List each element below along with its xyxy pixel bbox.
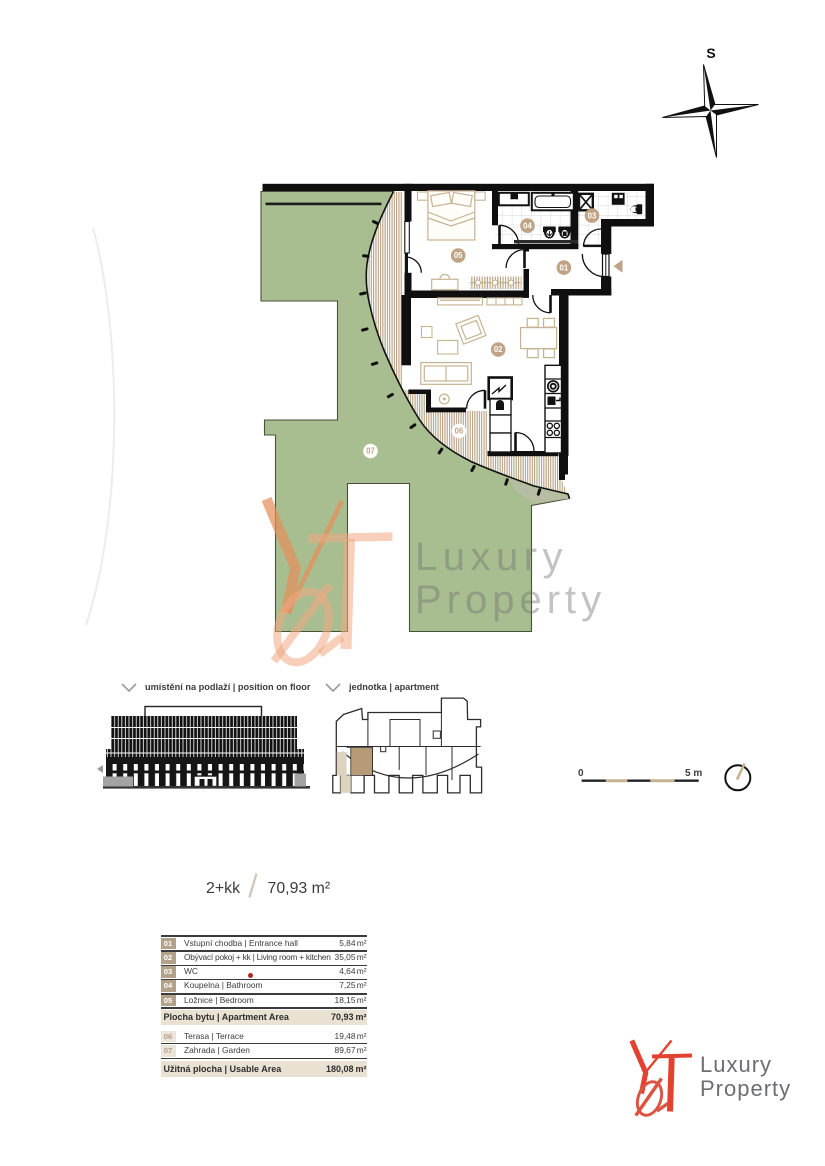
svg-text:0: 0 bbox=[578, 768, 584, 779]
svg-text:03: 03 bbox=[588, 211, 597, 220]
svg-text:S: S bbox=[706, 45, 715, 61]
svg-text:05: 05 bbox=[454, 251, 463, 260]
svg-text:Luxury: Luxury bbox=[415, 535, 568, 579]
svg-text:umístění na podlaží | position: umístění na podlaží | position on floor bbox=[145, 682, 311, 692]
svg-text:04: 04 bbox=[523, 221, 532, 230]
svg-text:2+kk: 2+kk bbox=[206, 880, 240, 897]
svg-text:5 m: 5 m bbox=[685, 768, 702, 779]
svg-text:06: 06 bbox=[455, 427, 464, 436]
svg-text:02: 02 bbox=[494, 345, 503, 354]
svg-text:jednotka | apartment: jednotka | apartment bbox=[348, 682, 439, 692]
svg-text:70,93 m²: 70,93 m² bbox=[268, 880, 331, 897]
svg-text:07: 07 bbox=[366, 447, 375, 456]
svg-text:Luxury: Luxury bbox=[700, 1052, 772, 1077]
svg-text:Property: Property bbox=[700, 1076, 791, 1101]
svg-text:01: 01 bbox=[560, 263, 569, 272]
svg-text:Property: Property bbox=[415, 578, 606, 622]
